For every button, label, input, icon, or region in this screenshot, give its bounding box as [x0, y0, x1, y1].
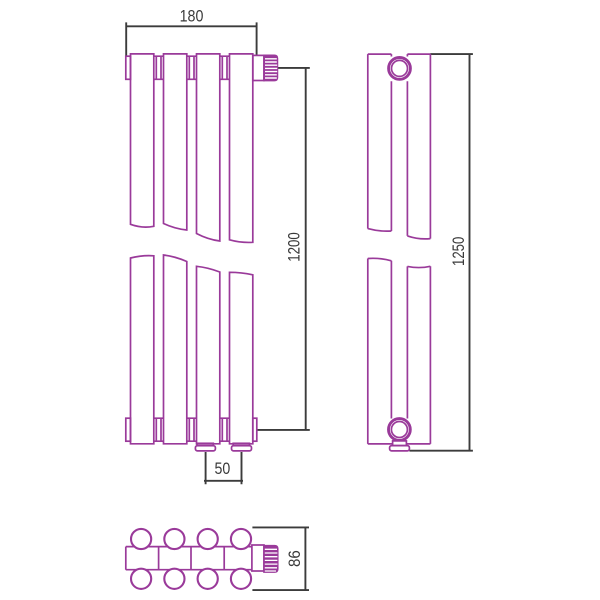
svg-text:86: 86	[286, 550, 304, 567]
svg-text:1200: 1200	[285, 232, 303, 262]
svg-text:50: 50	[215, 460, 231, 478]
svg-text:1250: 1250	[450, 237, 468, 266]
svg-text:180: 180	[180, 8, 204, 26]
